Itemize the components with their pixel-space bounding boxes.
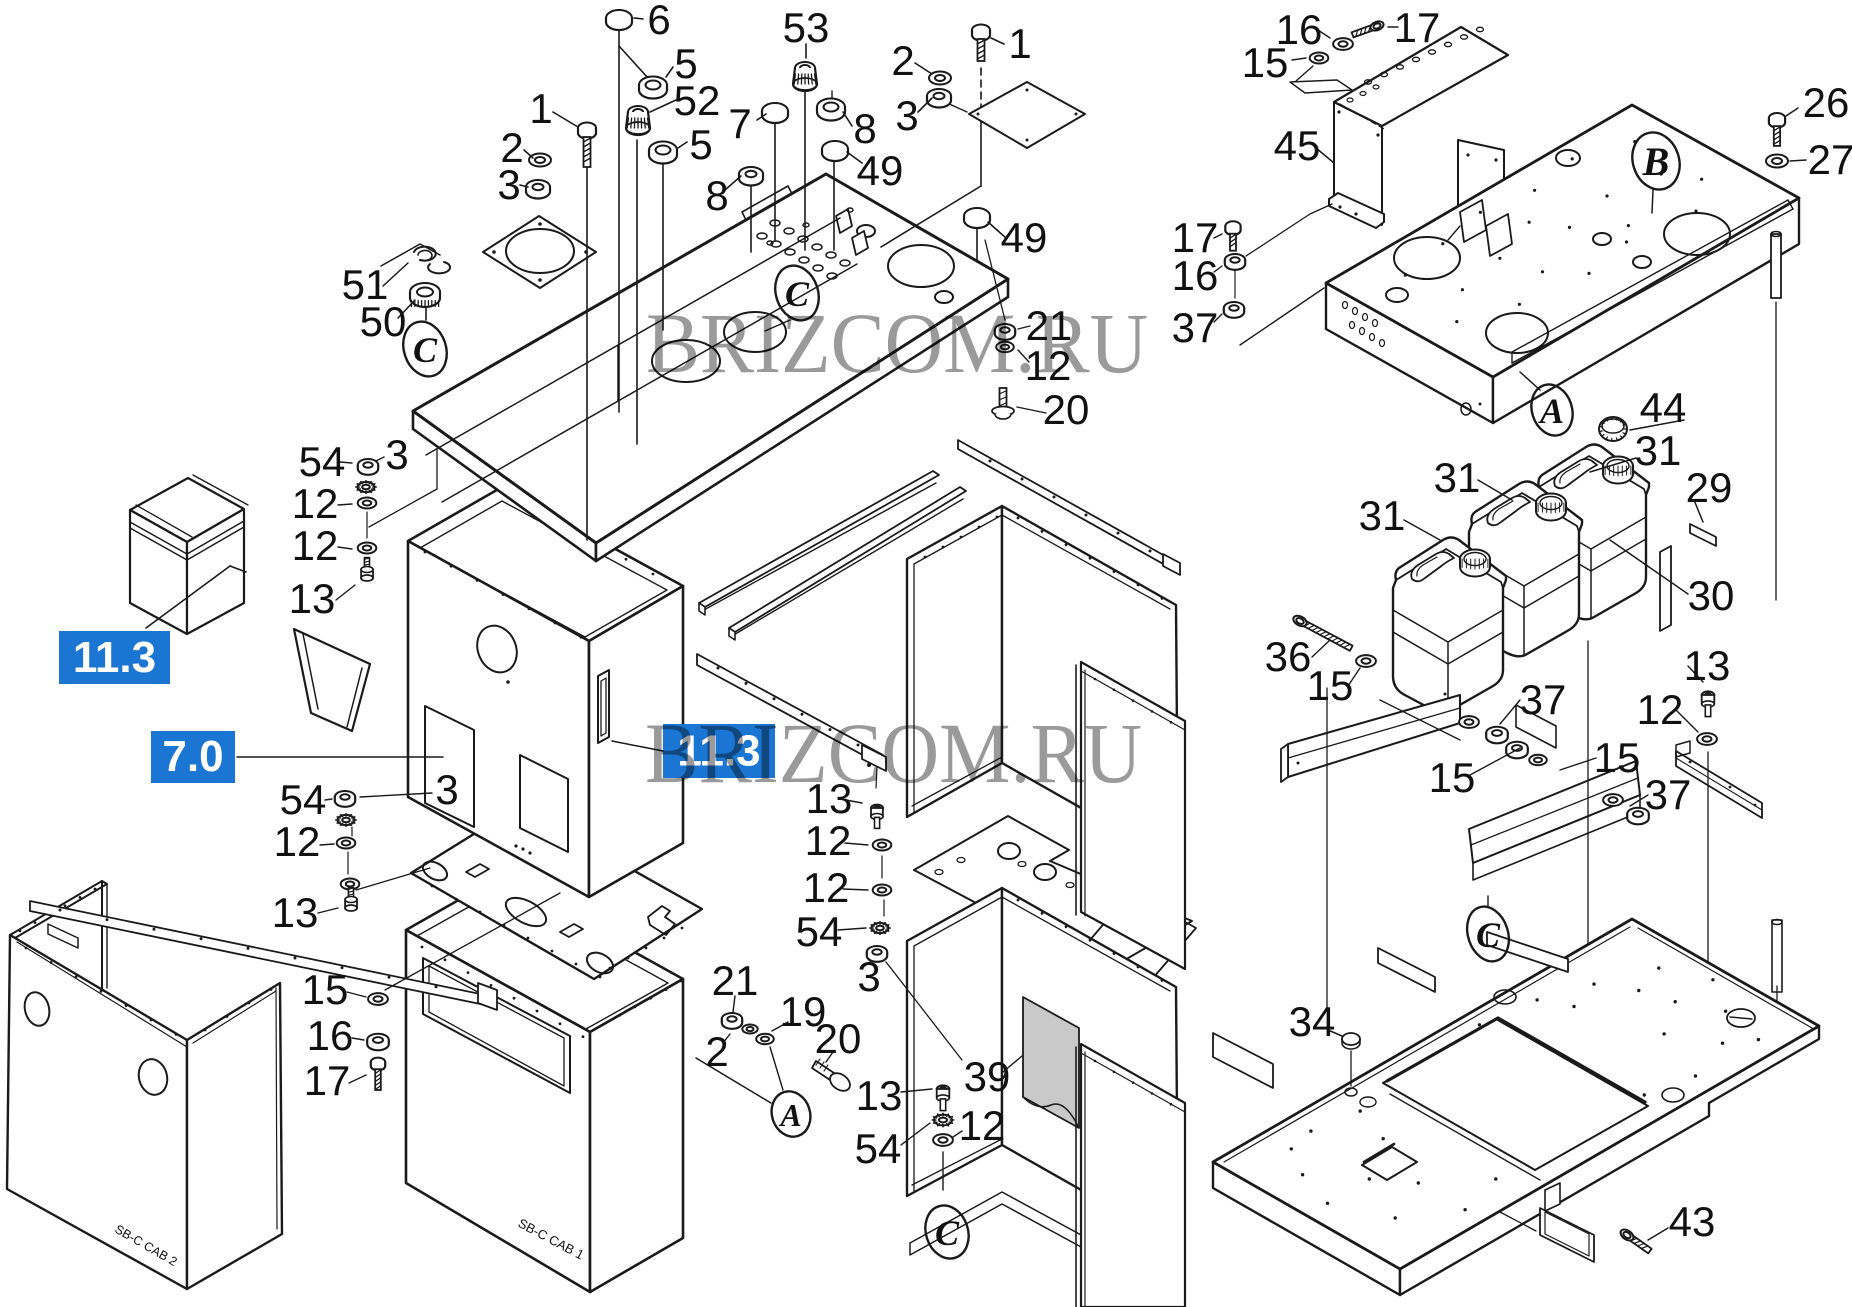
svg-text:49: 49 — [1001, 214, 1048, 261]
svg-text:2: 2 — [705, 1028, 728, 1075]
svg-text:A: A — [778, 1097, 801, 1133]
svg-text:31: 31 — [1635, 427, 1682, 474]
svg-text:17: 17 — [304, 1057, 351, 1104]
svg-text:3: 3 — [435, 766, 458, 813]
svg-text:1: 1 — [529, 85, 552, 132]
svg-text:3: 3 — [857, 953, 880, 1000]
svg-text:B: B — [1642, 139, 1670, 184]
svg-text:8: 8 — [705, 172, 728, 219]
svg-text:C: C — [1476, 915, 1501, 955]
svg-text:C: C — [935, 1213, 960, 1253]
svg-text:37: 37 — [1645, 771, 1692, 818]
svg-text:12: 12 — [292, 480, 339, 527]
svg-text:11.3: 11.3 — [73, 633, 156, 682]
svg-text:21: 21 — [712, 957, 759, 1004]
svg-text:C: C — [413, 330, 438, 370]
svg-text:20: 20 — [815, 1015, 862, 1062]
svg-text:31: 31 — [1359, 492, 1406, 539]
svg-text:52: 52 — [674, 77, 721, 124]
svg-text:8: 8 — [853, 105, 876, 152]
svg-text:13: 13 — [289, 575, 336, 622]
svg-text:13: 13 — [1684, 642, 1731, 689]
svg-text:50: 50 — [360, 298, 407, 345]
svg-text:12: 12 — [292, 522, 339, 569]
svg-text:BRIZCOM.RU: BRIZCOM.RU — [646, 295, 1148, 391]
svg-text:45: 45 — [1274, 122, 1321, 169]
svg-text:26: 26 — [1803, 79, 1850, 126]
svg-text:3: 3 — [895, 92, 918, 139]
svg-text:2: 2 — [891, 37, 914, 84]
svg-text:20: 20 — [1043, 386, 1090, 433]
svg-text:44: 44 — [1640, 384, 1687, 431]
svg-text:7: 7 — [728, 100, 751, 147]
svg-text:16: 16 — [1172, 252, 1219, 299]
svg-text:16: 16 — [307, 1012, 354, 1059]
svg-text:12: 12 — [959, 1102, 1006, 1149]
svg-text:53: 53 — [783, 4, 830, 51]
svg-text:17: 17 — [1394, 4, 1441, 51]
svg-text:1: 1 — [1008, 20, 1031, 67]
svg-text:12: 12 — [805, 817, 852, 864]
svg-text:37: 37 — [1172, 304, 1219, 351]
svg-text:36: 36 — [1265, 633, 1312, 680]
svg-text:BRIZCOM.RU: BRIZCOM.RU — [645, 705, 1142, 801]
svg-text:7.0: 7.0 — [162, 732, 223, 781]
svg-text:39: 39 — [964, 1053, 1011, 1100]
svg-text:5: 5 — [689, 121, 712, 168]
svg-text:15: 15 — [1242, 39, 1289, 86]
svg-text:A: A — [1538, 391, 1564, 431]
svg-text:15: 15 — [1429, 754, 1476, 801]
svg-text:12: 12 — [1637, 686, 1684, 733]
svg-text:49: 49 — [857, 147, 904, 194]
svg-text:15: 15 — [302, 966, 349, 1013]
svg-text:54: 54 — [299, 438, 346, 485]
svg-text:43: 43 — [1669, 1198, 1716, 1245]
svg-text:54: 54 — [796, 908, 843, 955]
svg-text:29: 29 — [1686, 464, 1733, 511]
svg-text:15: 15 — [1307, 662, 1354, 709]
svg-text:12: 12 — [274, 818, 321, 865]
svg-text:3: 3 — [385, 431, 408, 478]
svg-text:31: 31 — [1434, 454, 1481, 501]
svg-text:3: 3 — [497, 161, 520, 208]
svg-text:6: 6 — [647, 0, 670, 43]
svg-text:30: 30 — [1688, 572, 1735, 619]
svg-text:27: 27 — [1808, 136, 1852, 183]
svg-text:37: 37 — [1520, 676, 1567, 723]
svg-text:13: 13 — [856, 1072, 903, 1119]
svg-text:54: 54 — [280, 776, 327, 823]
svg-text:34: 34 — [1289, 998, 1336, 1045]
svg-text:54: 54 — [855, 1125, 902, 1172]
svg-text:13: 13 — [272, 889, 319, 936]
svg-text:12: 12 — [803, 864, 850, 911]
svg-text:15: 15 — [1594, 734, 1641, 781]
